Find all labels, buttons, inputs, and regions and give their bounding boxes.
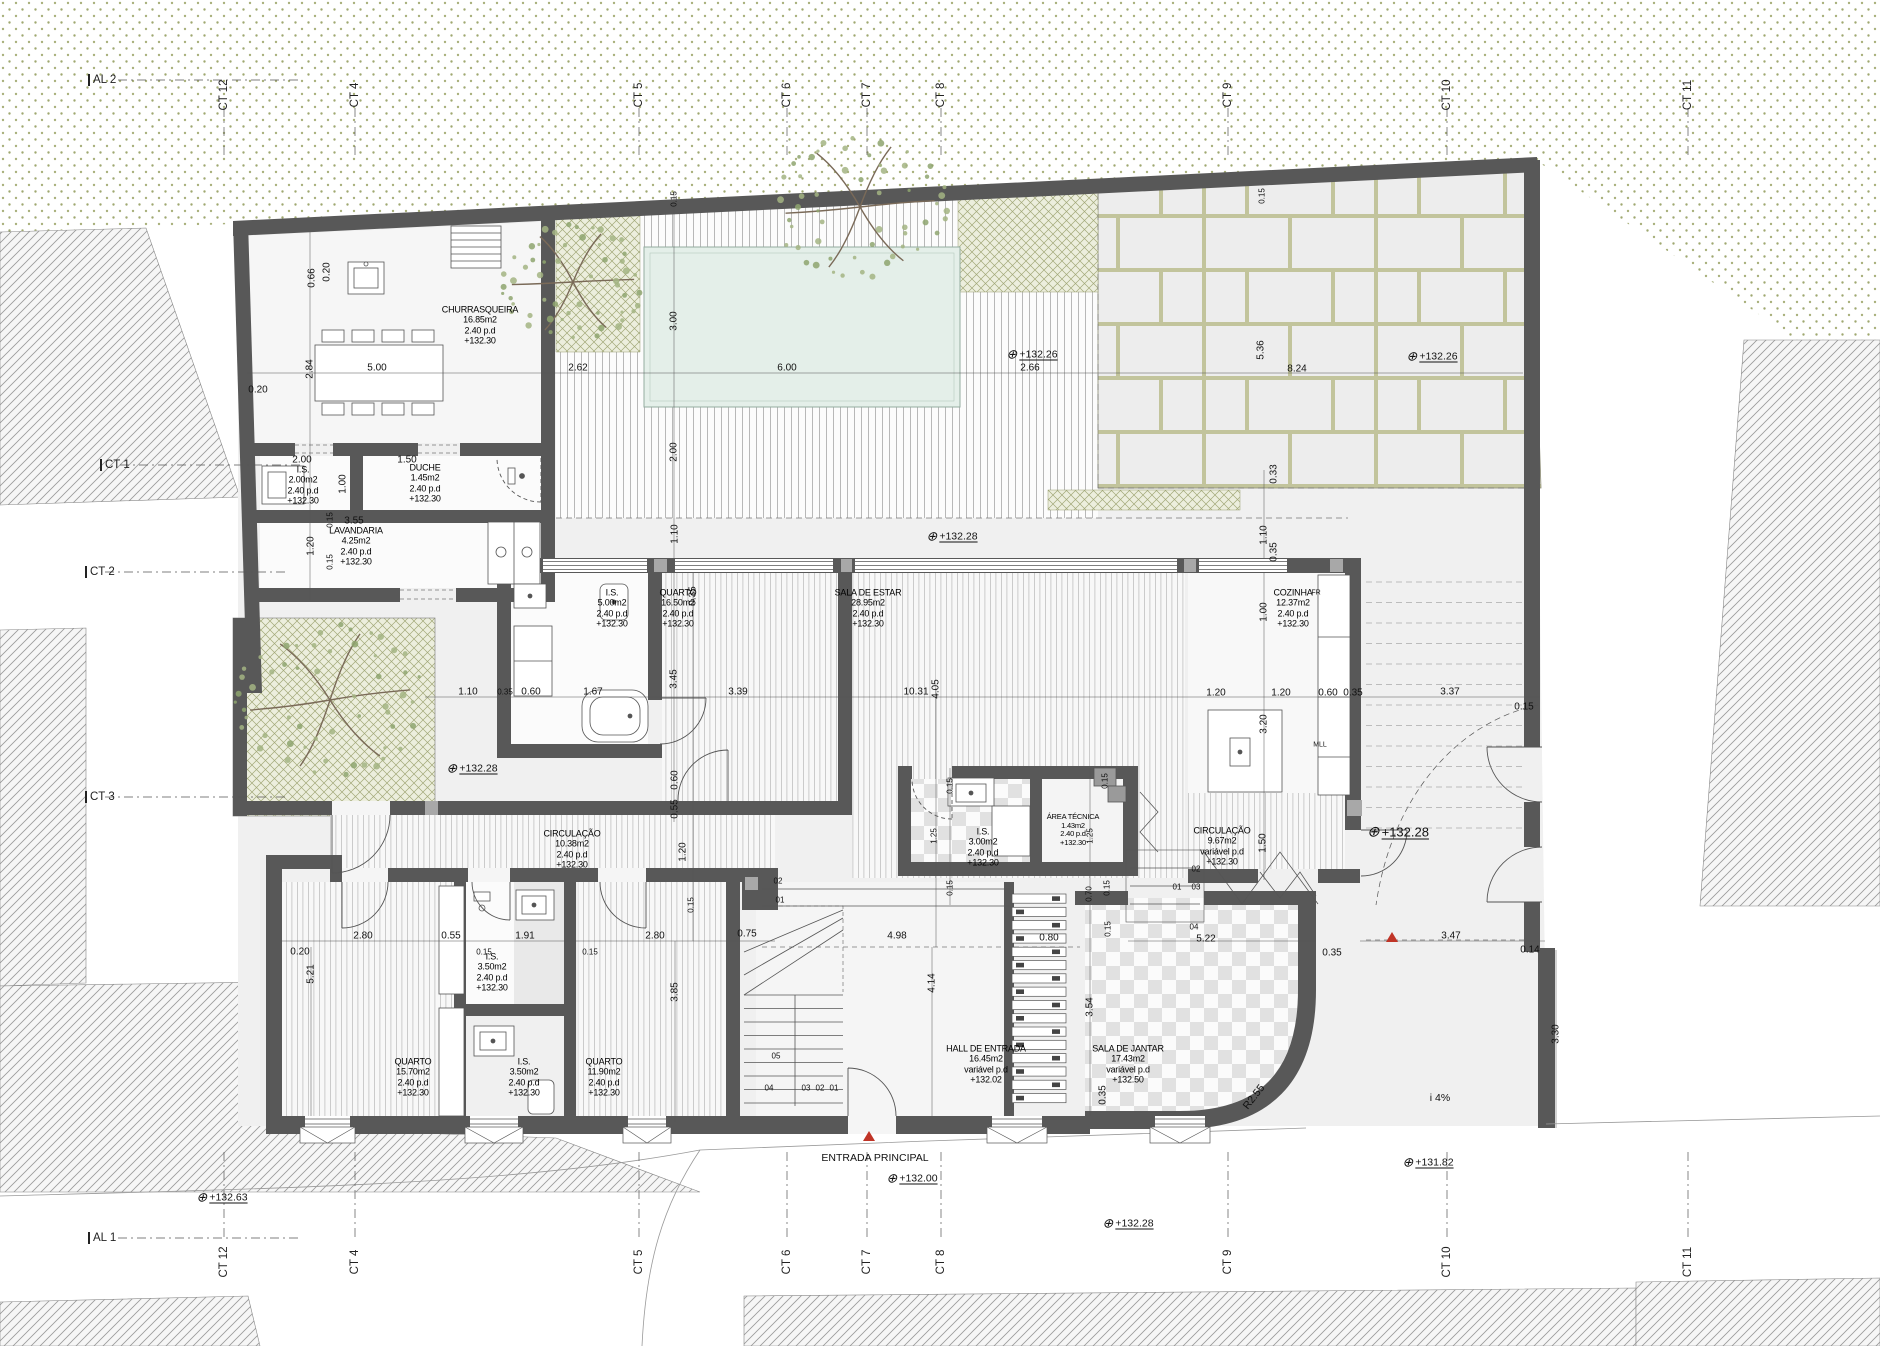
dimension-label: 1.20 xyxy=(306,536,317,555)
dimension-label: 4.14 xyxy=(927,973,938,992)
step-number: 04 xyxy=(1190,923,1199,932)
room-label: COZINHA12.37m22.40 p.d+132.30 xyxy=(1273,587,1312,628)
dimension-label: 3.39 xyxy=(728,687,747,698)
elevation-marker: ⊕+132.28 xyxy=(1367,825,1429,840)
dimension-label: 0.20 xyxy=(322,262,333,281)
dimension-label: 1.67 xyxy=(583,687,602,698)
grid-label-bottom: CT 12 xyxy=(218,1246,230,1277)
grid-label-bottom: CT 9 xyxy=(1222,1250,1234,1275)
annotation: MLL xyxy=(1313,742,1327,749)
dimension-label: 0.15 xyxy=(670,191,679,207)
floor-plan-canvas: 0.660.202.845.002.626.002.668.245.363.00… xyxy=(0,0,1880,1346)
dimension-label: 3.30 xyxy=(1551,1024,1562,1043)
step-number: 01 xyxy=(1173,883,1182,892)
grid-label-top: CT 8 xyxy=(935,83,947,108)
elevation-marker: ⊕+131.82 xyxy=(1402,1156,1453,1169)
room-label: HALL DE ENTRADA16.45m2variável p.d+132.0… xyxy=(946,1043,1026,1084)
room-label: I.S.3.50m22.40 p.d+132.30 xyxy=(476,951,507,992)
dimension-label: 10.31 xyxy=(903,687,928,698)
dimension-label: 0.55 xyxy=(670,799,681,818)
axis-label: AL 2 xyxy=(88,74,116,86)
room-label: CIRCULAÇÃO10.38m22.40 p.d+132.30 xyxy=(543,828,600,869)
grid-label-left: CT 2 xyxy=(85,566,115,578)
room-label: I.S.2.00m22.40 p.d+132.30 xyxy=(287,464,318,505)
dimension-label: 0.15 xyxy=(1514,702,1533,713)
step-number: 02 xyxy=(816,1084,825,1093)
dimension-label: 3.00 xyxy=(669,311,680,330)
dimension-label: 0.35 xyxy=(1098,1085,1109,1104)
dimension-label: 0.15 xyxy=(1103,880,1112,896)
grid-label-bottom: CT 11 xyxy=(1682,1247,1694,1277)
grid-label-top: CT 7 xyxy=(861,83,873,108)
room-label: QUARTO11.90m22.40 p.d+132.30 xyxy=(586,1056,623,1097)
dimension-label: 0.35 xyxy=(497,688,513,697)
grid-label-top: CT 10 xyxy=(1441,79,1453,110)
dimension-label: 0.35 xyxy=(1269,542,1280,561)
dimension-label: 2.66 xyxy=(1020,363,1039,374)
entrance-arrow xyxy=(863,1131,875,1141)
dimension-label: 1.20 xyxy=(1271,688,1290,699)
dimension-label: 0.60 xyxy=(670,770,681,789)
dimension-label: 0.35 xyxy=(1343,688,1362,699)
dimension-label: 1.25 xyxy=(930,828,939,844)
dimension-label: 0.80 xyxy=(1039,933,1058,944)
grid-label-bottom: CT 4 xyxy=(349,1250,361,1275)
room-label: QUARTO15.70m22.40 p.d+132.30 xyxy=(395,1056,432,1097)
dimension-label: 2.80 xyxy=(645,931,664,942)
room-label: SALA DE JANTAR17.43m2variável p.d+132.50 xyxy=(1092,1043,1164,1084)
grid-label-top: CT 12 xyxy=(218,79,230,110)
annotation: i 4% xyxy=(1430,1092,1450,1104)
dimension-label: 6.00 xyxy=(777,363,796,374)
grid-label-bottom: CT 10 xyxy=(1441,1246,1453,1277)
dimension-label: 0.66 xyxy=(307,268,318,287)
dimension-label: 2.80 xyxy=(353,931,372,942)
dimension-label: 3.85 xyxy=(670,982,681,1001)
dimension-label: 0.15 xyxy=(1101,773,1110,789)
dimension-label: 0.15 xyxy=(582,948,598,957)
dimension-label: 0.20 xyxy=(248,385,267,396)
dimension-label: 5.00 xyxy=(367,363,386,374)
elevation-marker: ⊕+132.26 xyxy=(1406,350,1457,363)
grid-label-bottom: CT 6 xyxy=(781,1250,793,1275)
step-number: 02 xyxy=(774,877,783,886)
dimension-label: 1.20 xyxy=(678,842,689,861)
grid-label-top: CT 9 xyxy=(1222,83,1234,108)
elevation-marker: ⊕+132.26 xyxy=(1006,348,1057,361)
dimension-label: 4.05 xyxy=(931,679,942,698)
room-label: CIRCULAÇÃO9.67m2variável p.d+132.30 xyxy=(1193,825,1250,866)
grid-label-bottom: CT 8 xyxy=(935,1250,947,1275)
room-label: SALA DE ESTAR28.95m22.40 p.d+132.30 xyxy=(835,587,902,628)
dimension-label: 5.36 xyxy=(1256,340,1267,359)
dimension-label: 0.20 xyxy=(290,947,309,958)
dimension-label: 0.15 xyxy=(946,880,955,896)
dimension-label: 8.24 xyxy=(1287,364,1306,375)
dimension-label: 0.15 xyxy=(1104,921,1113,937)
dimension-label: 0.55 xyxy=(441,931,460,942)
step-number: 03 xyxy=(802,1084,811,1093)
dimension-label: 2.62 xyxy=(568,363,587,374)
grid-label-bottom: CT 5 xyxy=(633,1250,645,1275)
elevation-marker: ⊕+132.63 xyxy=(196,1191,247,1204)
elevation-marker: ⊕+132.28 xyxy=(926,530,977,543)
room-label: I.S.5.00m22.40 p.d+132.30 xyxy=(596,587,627,628)
room-label: DUCHE1.45m22.40 p.d+132.30 xyxy=(409,462,440,503)
dimension-label: 0.60 xyxy=(1318,688,1337,699)
room-label: LAVANDARIA4.25m22.40 p.d+132.30 xyxy=(329,525,383,566)
dimension-label: 3.20 xyxy=(1259,714,1270,733)
grid-label-left: CT 3 xyxy=(85,791,115,803)
annotation: ENTRADA PRINCIPAL xyxy=(821,1152,928,1164)
dimension-label: 0.15 xyxy=(946,778,955,794)
step-number: 01 xyxy=(776,896,785,905)
dimension-label: 3.37 xyxy=(1440,687,1459,698)
grid-label-top: CT 4 xyxy=(349,83,361,108)
grid-label-top: CT 5 xyxy=(633,83,645,108)
elevation-marker: ⊕+132.28 xyxy=(1102,1217,1153,1230)
room-label: QUARTO16.50m22.40 p.d+132.30 xyxy=(660,587,697,628)
dimension-label: 0.33 xyxy=(1269,464,1280,483)
dimension-label: 0.35 xyxy=(1322,948,1341,959)
dimension-label: 1.20 xyxy=(1206,688,1225,699)
grid-label-top: CT 11 xyxy=(1682,80,1694,110)
dimension-label: 1.00 xyxy=(1259,602,1270,621)
step-number: 01 xyxy=(830,1084,839,1093)
dimension-label: 3.45 xyxy=(669,669,680,688)
dimension-label: 1.00 xyxy=(338,474,349,493)
step-number: 04 xyxy=(765,1084,774,1093)
dimension-label: 1.91 xyxy=(515,931,534,942)
room-label: CHURRASQUEIRA16.85m22.40 p.d+132.30 xyxy=(442,304,518,345)
dimension-label: 3.47 xyxy=(1441,931,1460,942)
elevation-marker: ⊕+132.00 xyxy=(886,1172,937,1185)
grid-label-top: CT 6 xyxy=(781,83,793,108)
dimension-label: 1.10 xyxy=(670,524,681,543)
labels-layer: 0.660.202.845.002.626.002.668.245.363.00… xyxy=(0,0,1880,1346)
grid-label-left: CT 1 xyxy=(100,459,130,471)
dimension-label: 0.15 xyxy=(1258,188,1267,204)
room-label: I.S.3.50m22.40 p.d+132.30 xyxy=(508,1056,539,1097)
step-number: 05 xyxy=(772,1052,781,1061)
axis-label: AL 1 xyxy=(88,1232,116,1244)
room-label: I.S.3.00m22.40 p.d+132.30 xyxy=(967,826,998,867)
dimension-label: 0.60 xyxy=(521,687,540,698)
dimension-label: 0.15 xyxy=(687,897,696,913)
dimension-label: 0.14 xyxy=(1520,945,1539,956)
dimension-label: 3.54 xyxy=(1085,997,1096,1016)
dimension-label: 5.22 xyxy=(1196,934,1215,945)
elevation-marker: ⊕+132.28 xyxy=(446,762,497,775)
annotation: FR xyxy=(1311,590,1320,597)
annotation: R2.55 xyxy=(1241,1082,1268,1111)
dimension-label: 4.98 xyxy=(887,931,906,942)
dimension-label: 1.10 xyxy=(458,687,477,698)
entrance-arrow xyxy=(1386,932,1398,942)
dimension-label: 2.84 xyxy=(305,359,316,378)
dimension-label: 0.70 xyxy=(1085,886,1094,902)
dimension-label: 0.75 xyxy=(737,929,756,940)
room-label: ÁREA TÉCNICA1.43m22.40 p.d+132.30 xyxy=(1047,813,1099,848)
grid-label-bottom: CT 7 xyxy=(861,1250,873,1275)
step-number: 03 xyxy=(1192,883,1201,892)
dimension-label: 1.50 xyxy=(1258,833,1269,852)
dimension-label: 2.00 xyxy=(669,442,680,461)
dimension-label: 5.21 xyxy=(306,964,317,983)
